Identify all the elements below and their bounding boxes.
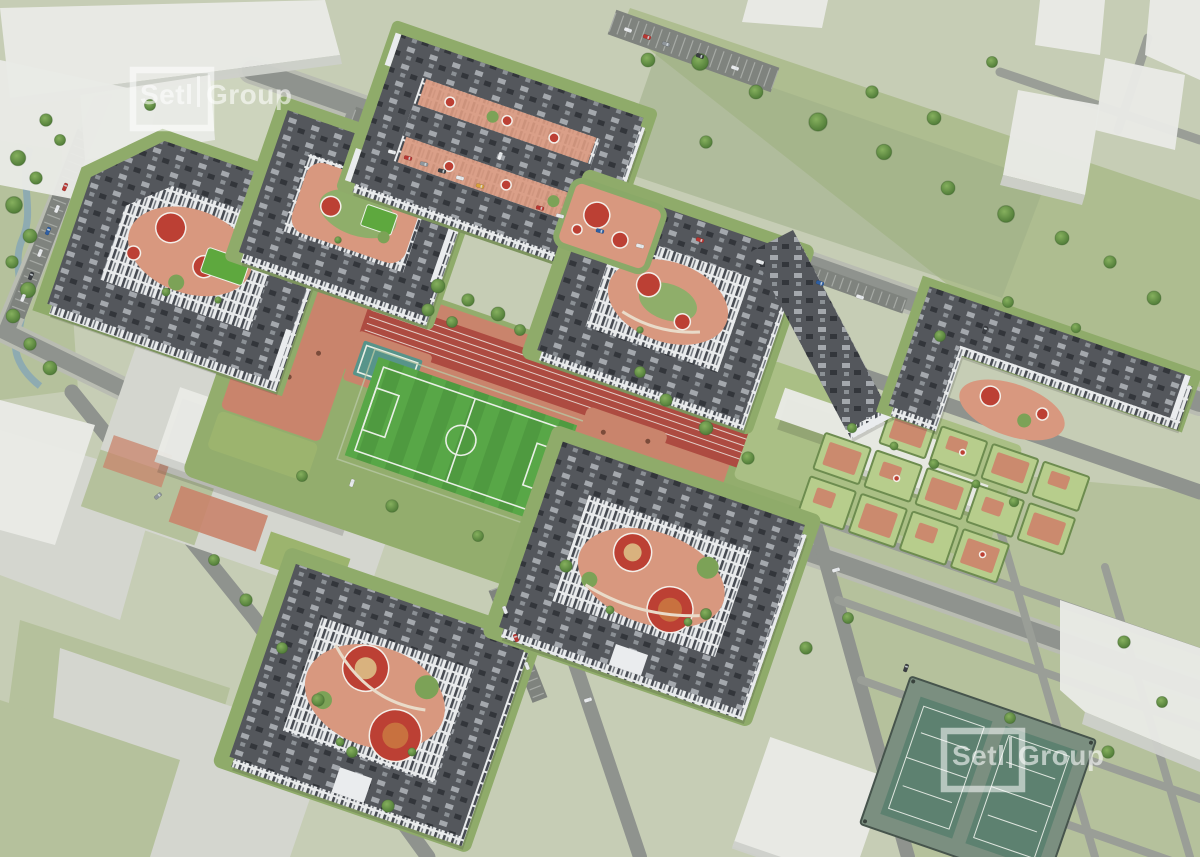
watermark-setl-text: Setl bbox=[140, 79, 193, 110]
watermark-group-text: Group bbox=[1018, 740, 1105, 771]
watermark-group-text: Group bbox=[206, 79, 293, 110]
watermark-setl-text: Setl bbox=[952, 740, 1005, 771]
logo-divider-icon bbox=[1009, 737, 1012, 768]
aerial-masterplan-render: Setl Group Setl Group bbox=[0, 0, 1200, 857]
logo-divider-icon bbox=[197, 76, 200, 107]
